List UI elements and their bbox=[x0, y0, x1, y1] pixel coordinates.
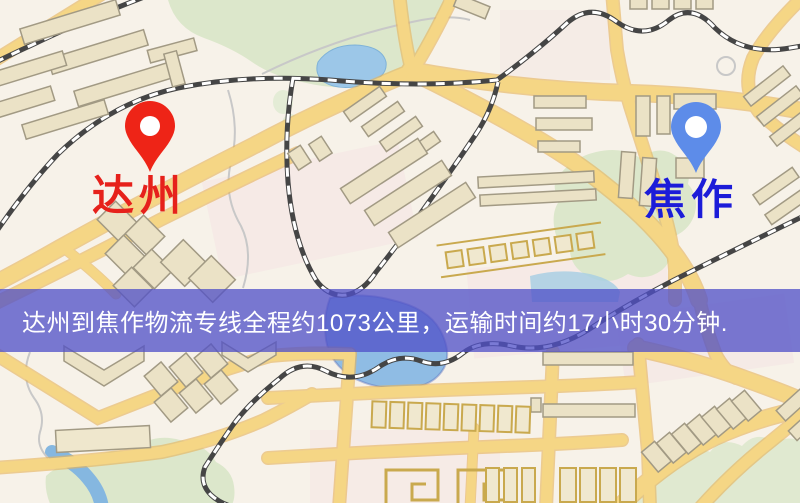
map-graphics bbox=[0, 0, 800, 503]
map-canvas: 达州 焦作 达州到焦作物流专线全程约1073公里，运输时间约17小时30分钟. bbox=[0, 0, 800, 503]
origin-pin-hole bbox=[140, 116, 160, 136]
route-info-banner: 达州到焦作物流专线全程约1073公里，运输时间约17小时30分钟. bbox=[0, 289, 800, 352]
route-info-text: 达州到焦作物流专线全程约1073公里，运输时间约17小时30分钟. bbox=[0, 303, 728, 338]
destination-city-label: 焦作 bbox=[644, 180, 738, 222]
origin-city-label: 达州 bbox=[92, 176, 186, 218]
destination-pin-hole bbox=[685, 116, 707, 138]
